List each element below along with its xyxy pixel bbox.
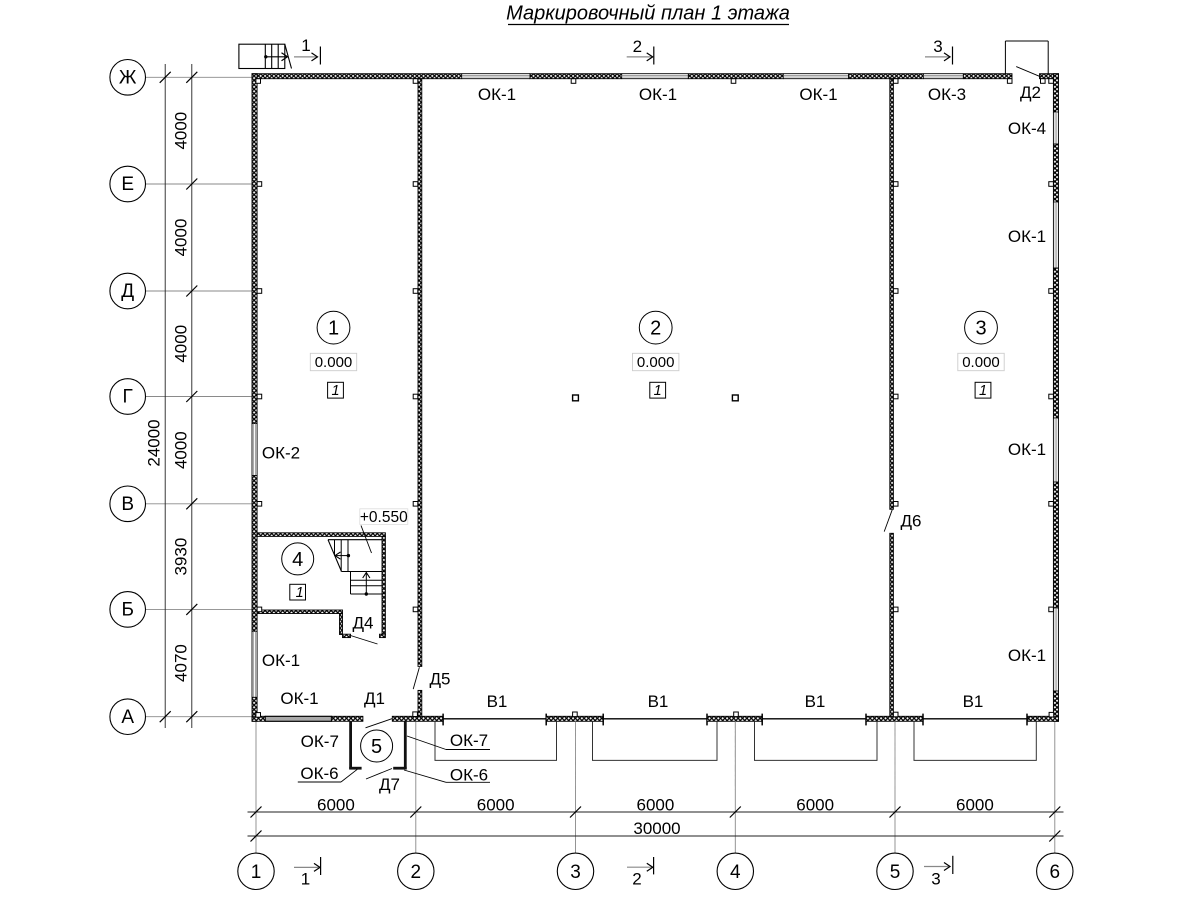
svg-text:6000: 6000	[317, 796, 355, 815]
svg-text:Д1: Д1	[364, 689, 385, 708]
svg-text:Д4: Д4	[353, 614, 374, 633]
svg-text:4: 4	[730, 862, 741, 883]
svg-text:3: 3	[931, 870, 940, 889]
svg-text:6000: 6000	[477, 796, 515, 815]
svg-text:1: 1	[331, 383, 339, 399]
svg-text:30000: 30000	[633, 819, 680, 838]
svg-text:1: 1	[654, 383, 662, 399]
svg-text:+0.550: +0.550	[360, 509, 408, 526]
svg-text:ОК-1: ОК-1	[280, 689, 318, 708]
svg-text:6000: 6000	[796, 796, 834, 815]
svg-text:Б: Б	[121, 600, 133, 621]
svg-text:24000: 24000	[145, 419, 164, 466]
svg-text:В1: В1	[963, 692, 984, 711]
svg-text:Ж: Ж	[119, 68, 137, 89]
svg-text:3: 3	[933, 37, 942, 56]
svg-text:Д7: Д7	[379, 775, 400, 794]
svg-text:ОК-1: ОК-1	[639, 85, 677, 104]
svg-text:ОК-4: ОК-4	[1008, 119, 1046, 138]
svg-text:2: 2	[632, 870, 641, 889]
svg-text:5: 5	[371, 736, 382, 758]
svg-text:0.000: 0.000	[637, 354, 675, 371]
svg-text:1: 1	[301, 36, 310, 55]
svg-text:4: 4	[292, 549, 303, 571]
svg-text:1: 1	[251, 862, 262, 883]
svg-text:Д: Д	[121, 281, 134, 302]
svg-text:6: 6	[1050, 862, 1061, 883]
svg-text:6000: 6000	[956, 796, 994, 815]
svg-text:5: 5	[890, 862, 901, 883]
svg-text:ОК-6: ОК-6	[300, 764, 338, 783]
svg-text:0.000: 0.000	[962, 354, 1000, 371]
svg-text:ОК-1: ОК-1	[1008, 646, 1046, 665]
svg-text:Д2: Д2	[1020, 83, 1041, 102]
svg-text:В1: В1	[487, 692, 508, 711]
svg-text:ОК-1: ОК-1	[799, 85, 837, 104]
svg-text:Г: Г	[123, 387, 133, 408]
svg-text:ОК-3: ОК-3	[928, 85, 966, 104]
svg-text:В: В	[121, 494, 134, 515]
svg-text:ОК-1: ОК-1	[478, 85, 516, 104]
svg-text:ОК-1: ОК-1	[1008, 440, 1046, 459]
svg-text:4000: 4000	[172, 112, 191, 150]
svg-text:ОК-7: ОК-7	[301, 732, 339, 751]
svg-text:0.000: 0.000	[315, 354, 353, 371]
svg-text:3: 3	[570, 862, 581, 883]
svg-text:ОК-1: ОК-1	[262, 651, 300, 670]
svg-text:1: 1	[328, 318, 339, 340]
svg-text:4000: 4000	[172, 219, 191, 257]
svg-text:1: 1	[979, 383, 987, 399]
svg-text:6000: 6000	[636, 796, 674, 815]
svg-text:3: 3	[975, 318, 986, 340]
svg-text:ОК-2: ОК-2	[262, 444, 300, 463]
svg-text:2: 2	[633, 37, 642, 56]
svg-text:В1: В1	[805, 692, 826, 711]
svg-text:ОК-7: ОК-7	[450, 731, 488, 750]
svg-text:1: 1	[296, 585, 304, 601]
svg-text:ОК-1: ОК-1	[1008, 227, 1046, 246]
svg-text:Д5: Д5	[430, 670, 451, 689]
svg-text:4000: 4000	[172, 431, 191, 469]
svg-text:3930: 3930	[172, 538, 191, 576]
svg-text:4000: 4000	[172, 325, 191, 363]
svg-text:2: 2	[411, 862, 422, 883]
svg-text:2: 2	[650, 318, 661, 340]
svg-text:Маркировочный план 1 этажа: Маркировочный план 1 этажа	[506, 3, 790, 25]
svg-text:4070: 4070	[172, 644, 191, 682]
svg-text:ОК-6: ОК-6	[450, 765, 488, 784]
svg-text:В1: В1	[648, 692, 669, 711]
svg-text:А: А	[121, 707, 134, 728]
svg-text:Е: Е	[121, 174, 134, 195]
svg-text:1: 1	[301, 870, 310, 889]
svg-text:Д6: Д6	[901, 512, 922, 531]
